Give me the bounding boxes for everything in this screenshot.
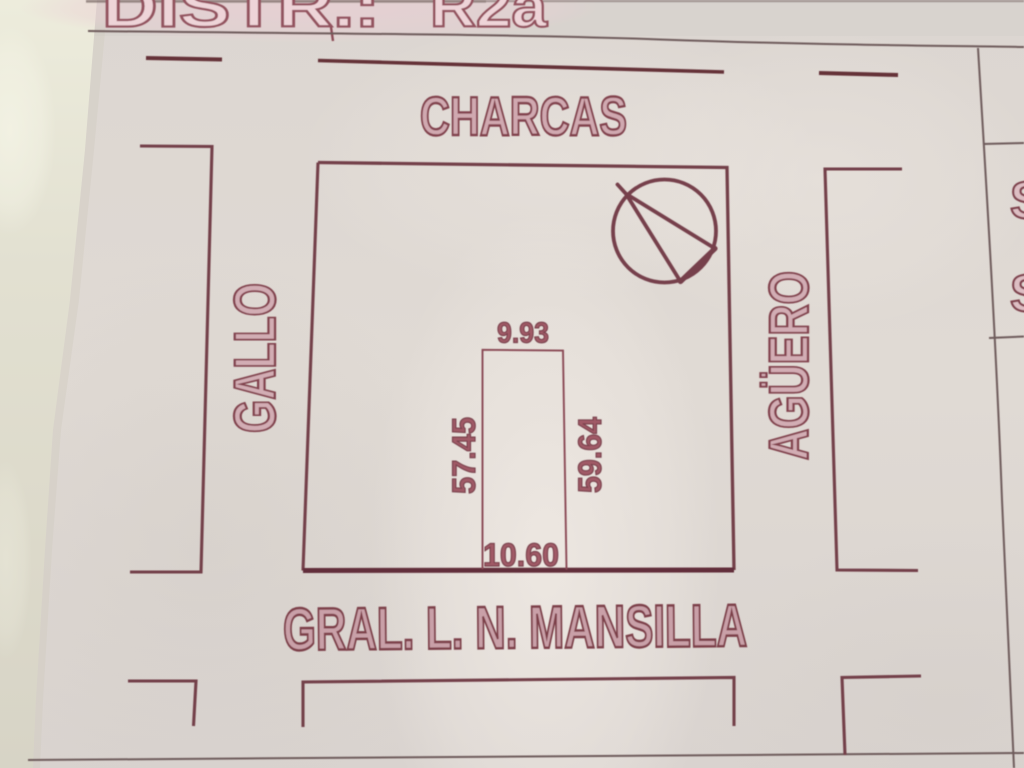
svg-text:CHARCAS: CHARCAS — [420, 85, 627, 147]
svg-text:59.64: 59.64 — [572, 417, 608, 493]
svg-text:S: S — [1010, 265, 1024, 323]
svg-text:R2a: R2a — [430, 0, 548, 40]
svg-text:S: S — [1010, 172, 1024, 230]
svg-text:GALLO: GALLO — [223, 283, 288, 433]
svg-text:9.93: 9.93 — [497, 318, 549, 350]
svg-text:AGÜERO: AGÜERO — [757, 271, 820, 460]
svg-text:57.45: 57.45 — [446, 417, 482, 494]
svg-text:10.60: 10.60 — [483, 537, 559, 573]
svg-text:GRAL. L. N. MANSILLA: GRAL. L. N. MANSILLA — [283, 592, 748, 663]
